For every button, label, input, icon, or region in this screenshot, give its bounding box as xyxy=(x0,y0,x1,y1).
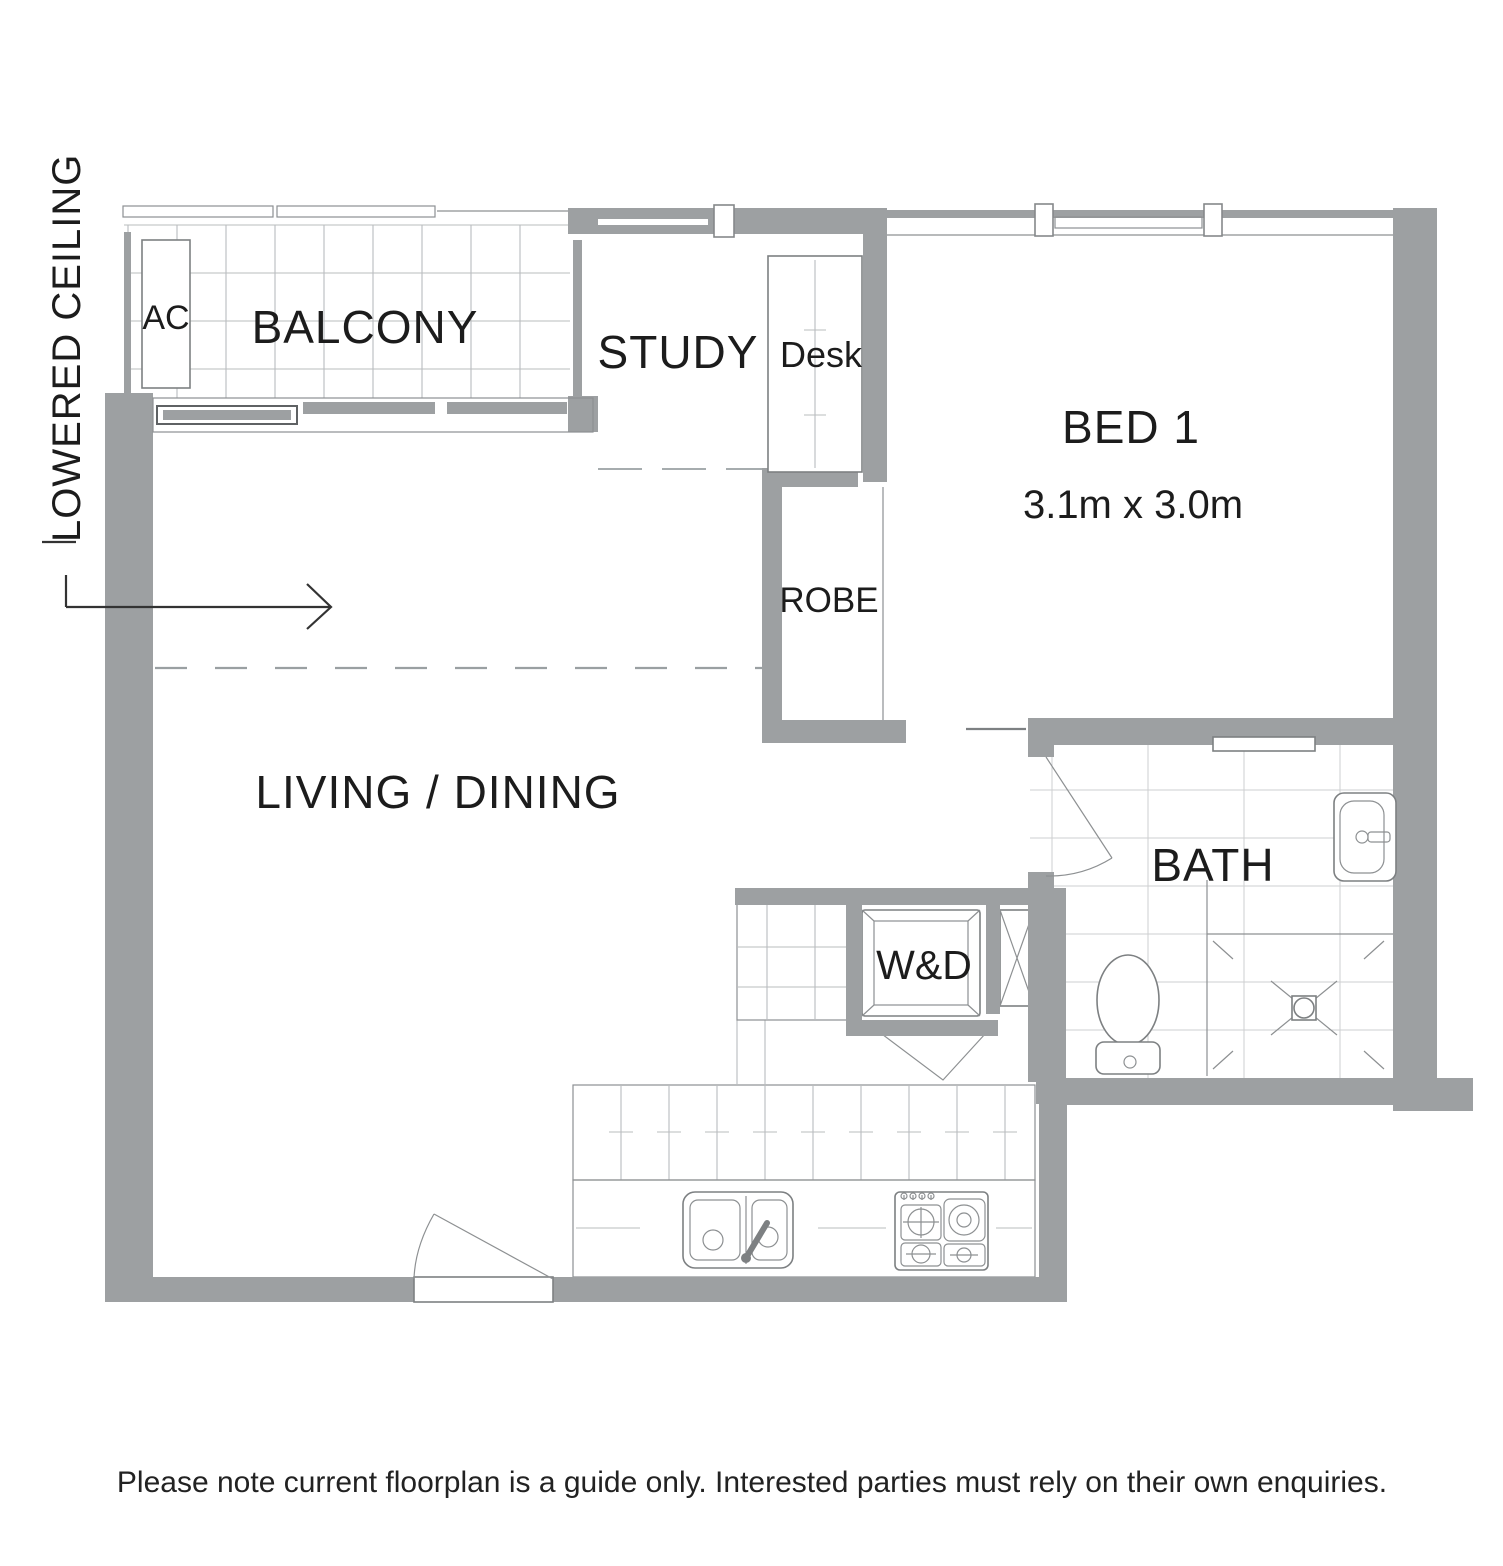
study-window-slit xyxy=(598,219,708,225)
towel-rail xyxy=(1213,737,1315,751)
sliding-door xyxy=(153,398,593,432)
wall-robe-bottom xyxy=(762,720,906,743)
pantry-shelves xyxy=(737,904,847,1020)
ac-label: AC xyxy=(142,299,189,337)
robe-label: ROBE xyxy=(779,581,878,620)
bed-window-glazing xyxy=(1055,217,1202,228)
wall-right xyxy=(1393,208,1437,1105)
sliding-panel-2 xyxy=(303,402,435,414)
wall-wd-top xyxy=(735,888,1036,905)
bed1-dims: 3.1m x 3.0m xyxy=(1023,483,1243,527)
room-study: STUDY Desk xyxy=(598,256,863,472)
room-balcony: AC BALCONY xyxy=(123,206,570,398)
room-bed1: BED 1 3.1m x 3.0m xyxy=(966,401,1243,729)
kitchen xyxy=(573,1020,1035,1277)
sliding-panel-3 xyxy=(447,402,567,414)
sliding-panel-1-fill xyxy=(163,410,291,420)
toilet xyxy=(1096,955,1160,1074)
room-robe: ROBE xyxy=(779,487,883,720)
wall-study-window-strip xyxy=(573,240,582,396)
bath-basin xyxy=(1334,793,1396,881)
entry-door xyxy=(414,1214,553,1302)
bed1-label: BED 1 xyxy=(1062,401,1200,453)
disclaimer-text: Please note current floorplan is a guide… xyxy=(117,1466,1387,1499)
room-bath: BATH xyxy=(1046,737,1396,1076)
window-mullion-2 xyxy=(1035,204,1053,236)
entry-arrow xyxy=(42,542,331,629)
counter-connector xyxy=(737,1020,765,1085)
wall-study-right-pier xyxy=(863,208,887,482)
shower xyxy=(1207,880,1393,1076)
top-windows xyxy=(598,204,1393,237)
study-label: STUDY xyxy=(598,326,759,378)
balcony-rail-left xyxy=(123,206,273,217)
wall-kitchen-right xyxy=(1039,1100,1067,1302)
wall-shaft-left-strip xyxy=(986,904,1000,1014)
desk-label: Desk xyxy=(780,334,863,375)
balcony-label: BALCONY xyxy=(252,301,479,353)
wall-wd-bottom-strip xyxy=(846,1020,998,1036)
kitchen-sink xyxy=(683,1192,793,1268)
cooktop xyxy=(895,1192,988,1270)
window-mullion-3 xyxy=(1204,204,1222,236)
wall-bottom-left xyxy=(105,1277,414,1302)
floorplan: AC BALCONY xyxy=(0,0,1503,1566)
bath-label: BATH xyxy=(1151,839,1274,891)
wd-label: W&D xyxy=(876,942,972,988)
wall-wd-left-strip xyxy=(846,904,862,1036)
living-label: LIVING / DINING xyxy=(255,766,620,818)
wall-bath-bottom xyxy=(1039,1078,1439,1105)
wall-bath-door-jamb xyxy=(1028,744,1054,757)
wall-balcony-stub xyxy=(124,232,131,395)
balcony-rail-right xyxy=(277,206,435,217)
wall-wd-right xyxy=(1036,888,1066,1104)
bath-door xyxy=(1046,757,1112,876)
floorplan-svg: AC BALCONY xyxy=(0,0,1503,1566)
wall-bottom-mid xyxy=(553,1277,1067,1302)
wall-left xyxy=(105,393,153,1301)
window-mullion-1 xyxy=(714,205,734,237)
lowered-ceiling-label: LOWERED CEILING xyxy=(45,154,89,542)
